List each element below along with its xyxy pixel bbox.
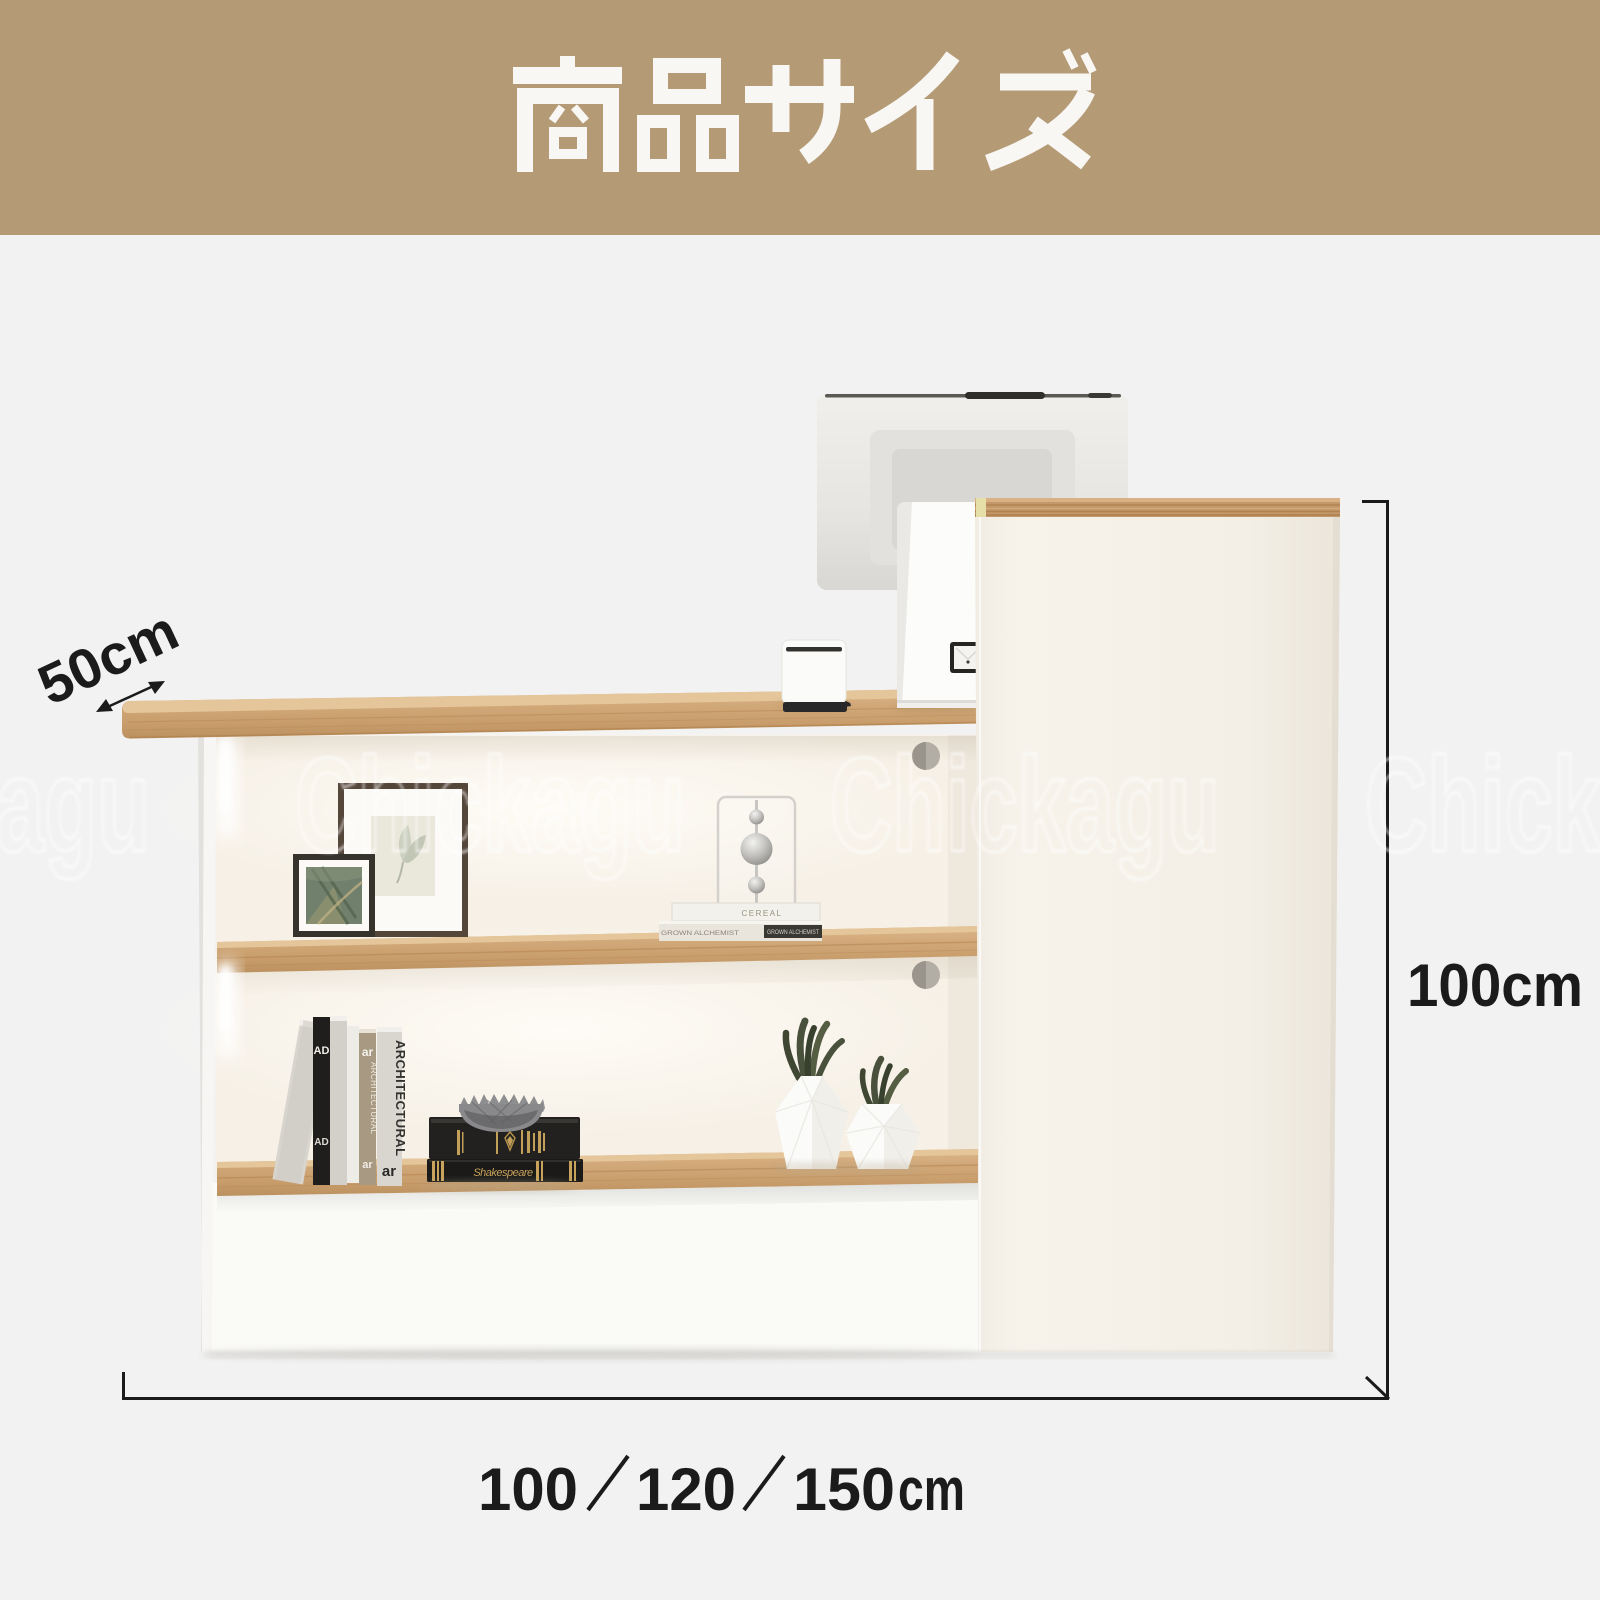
svg-text:150: 150: [793, 1456, 895, 1523]
svg-text:cm: cm: [898, 1456, 965, 1523]
svg-text:CEREAL: CEREAL: [741, 909, 782, 918]
svg-text:ar: ar: [382, 1163, 396, 1180]
svg-text:ARCHITECTURAL: ARCHITECTURAL: [369, 1062, 378, 1134]
svg-text:120: 120: [636, 1456, 736, 1523]
svg-text:ar: ar: [362, 1159, 373, 1171]
svg-text:GROWN ALCHEMIST: GROWN ALCHEMIST: [767, 929, 819, 936]
svg-text:Chickagu: Chickagu: [295, 731, 685, 880]
svg-text:ARCHITECTURAL: ARCHITECTURAL: [393, 1040, 408, 1156]
svg-text:AD: AD: [314, 1137, 328, 1148]
svg-text:Shakespeare: Shakespeare: [473, 1167, 533, 1179]
svg-text:GROWN ALCHEMIST: GROWN ALCHEMIST: [661, 930, 739, 937]
svg-text:100: 100: [478, 1456, 578, 1523]
svg-text:Chickagu: Chickagu: [1365, 731, 1600, 880]
svg-text:100cm: 100cm: [1407, 952, 1583, 1019]
svg-text:Chickagu: Chickagu: [830, 731, 1220, 880]
svg-text:Chickagu: Chickagu: [0, 731, 150, 880]
svg-text:ar: ar: [362, 1045, 374, 1059]
svg-text:AD: AD: [314, 1045, 330, 1057]
